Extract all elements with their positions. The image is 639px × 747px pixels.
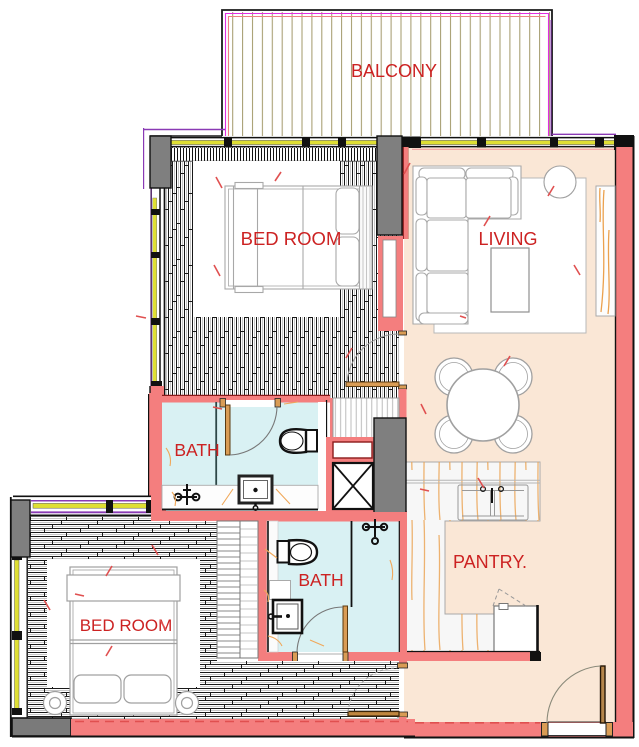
svg-text:PANTRY.: PANTRY. [453,552,527,572]
svg-text:LIVING: LIVING [478,229,537,249]
svg-text:BATH: BATH [298,570,343,590]
svg-text:BALCONY: BALCONY [351,61,437,81]
svg-text:BED ROOM: BED ROOM [80,616,173,635]
svg-text:BATH: BATH [174,440,219,460]
svg-text:BED ROOM: BED ROOM [241,228,342,249]
